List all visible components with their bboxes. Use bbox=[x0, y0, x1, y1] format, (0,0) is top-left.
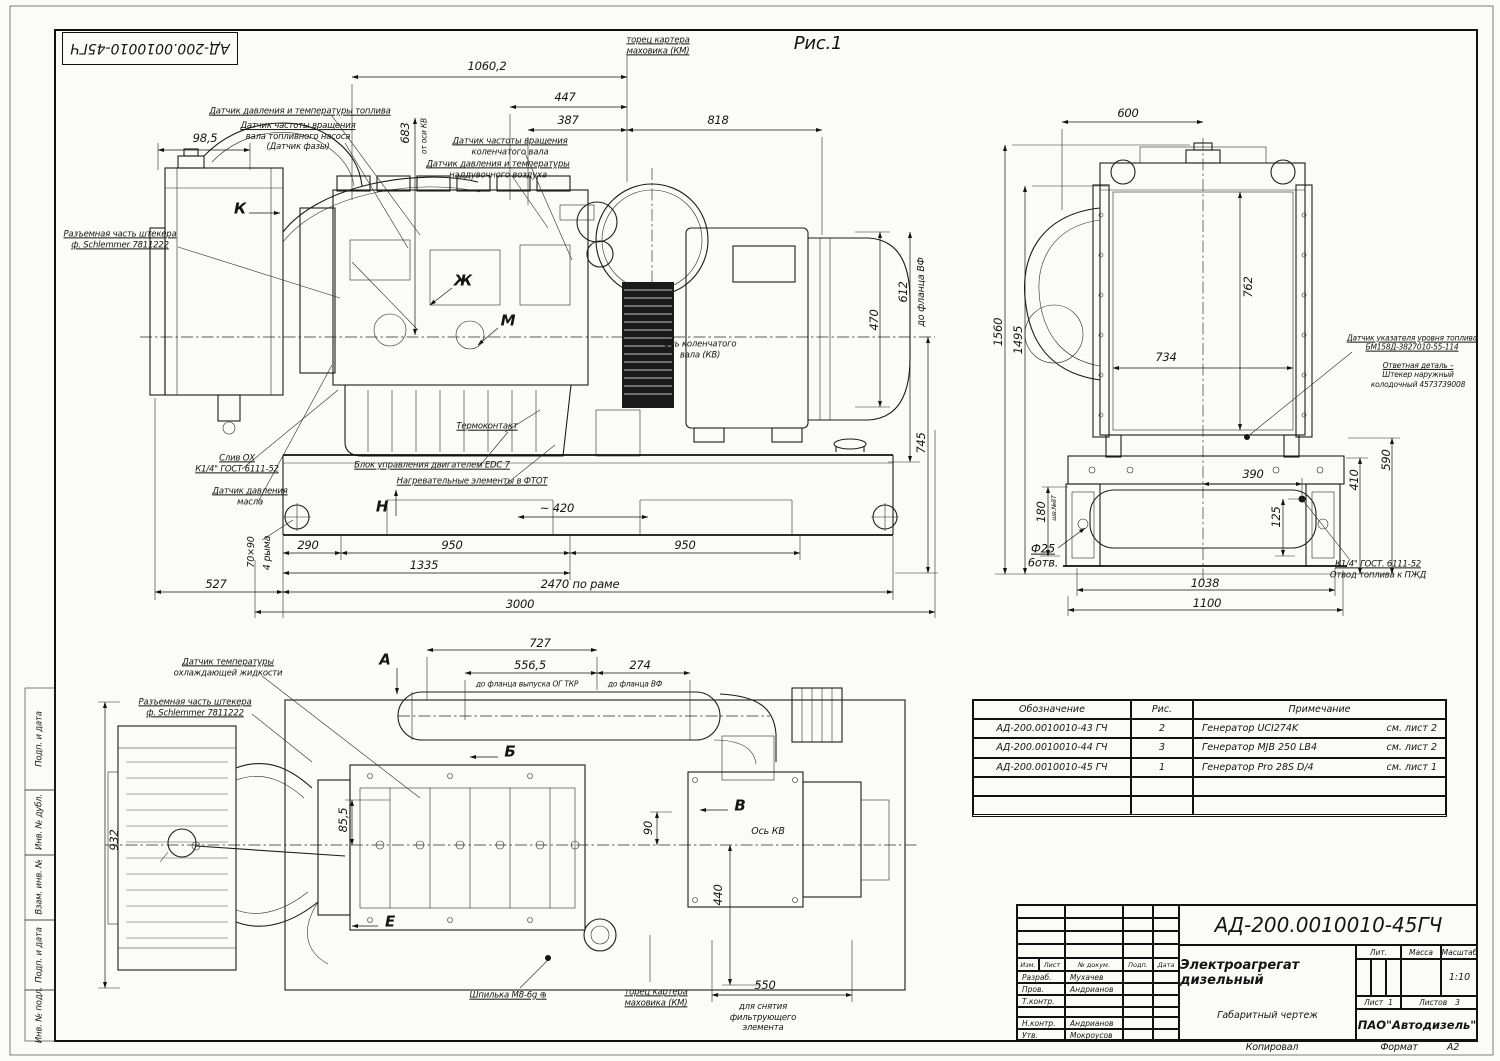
callout-line: ф. Schlemmer 7811222 bbox=[71, 240, 169, 250]
callout-line: Ответная деталь – bbox=[1383, 361, 1454, 370]
callout-connector-plan: Разъемная часть штекера ф. Schlemmer 781… bbox=[139, 697, 252, 718]
callout-heaters: Нагревательные элементы в ФТОТ bbox=[397, 477, 548, 488]
dim-90: 90 bbox=[641, 821, 655, 835]
table-cell: АД-200.0010010-43 ГЧ bbox=[973, 719, 1131, 738]
see-sheet: см. лист 2 bbox=[1387, 723, 1438, 734]
dim-1495: 1495 bbox=[1011, 326, 1025, 354]
parts-header-designation: Обозначение bbox=[973, 700, 1131, 719]
table-cell bbox=[1193, 777, 1446, 796]
dim-180: 180 bbox=[1034, 501, 1048, 522]
table-cell: АД-200.0010010-44 ГЧ bbox=[973, 738, 1131, 757]
margin-label-2: Инв. № дубл. bbox=[35, 794, 46, 850]
view-letter-zh: Ж bbox=[454, 272, 472, 291]
parts-header-fig: Рис. bbox=[1131, 700, 1193, 719]
view-letter-n: Н bbox=[376, 498, 388, 517]
dim-420: ~ 420 bbox=[540, 501, 574, 515]
sheet-frame bbox=[10, 6, 1493, 1055]
view-letter-a: А bbox=[379, 651, 390, 670]
dim-387: 387 bbox=[557, 113, 578, 127]
title-block: Изм. Лист № докум. Подп. Дата Разраб. Му… bbox=[1016, 904, 1477, 1040]
tb-col-izm: Изм. bbox=[1017, 958, 1039, 971]
tb-prov: Пров. bbox=[1017, 983, 1065, 995]
dim-683-note: от оси КВ bbox=[419, 118, 428, 154]
dim-274: 274 bbox=[629, 658, 650, 672]
tb-prov-name: Андрианов bbox=[1065, 983, 1123, 995]
dim-290: 290 bbox=[297, 538, 318, 552]
tb-col-podp: Подп. bbox=[1123, 958, 1153, 971]
tb-sheet-cell: Лист 1 bbox=[1356, 996, 1401, 1009]
callout-fuel-outlet: К1/4" ГОСТ. 6111-52 Отвод топлива к ПЖД bbox=[1330, 559, 1426, 580]
tb-utv-name: Мокроусов bbox=[1065, 1029, 1123, 1041]
dim-1038: 1038 bbox=[1191, 576, 1219, 590]
tb-nkontr: Н.контр. bbox=[1017, 1017, 1065, 1029]
see-sheet: см. лист 1 bbox=[1387, 762, 1438, 773]
callout-line: охлаждающей жидкости bbox=[174, 668, 283, 678]
callout-crank-axis: Ось коленчатого вала (КВ) bbox=[664, 339, 737, 360]
callout-line: для снятия bbox=[739, 1002, 787, 1012]
callout-line: маховика (КМ) bbox=[625, 998, 688, 1008]
callout-line: Датчик температуры bbox=[182, 657, 274, 667]
callout-line: маховика (КМ) bbox=[627, 46, 690, 56]
callout-line: Штекер наружный bbox=[1382, 370, 1453, 379]
tb-listov-label: Листов bbox=[1419, 998, 1447, 1007]
margin-label-3: Взам. инв. № bbox=[35, 859, 46, 914]
tb-tkontr-name bbox=[1065, 995, 1123, 1007]
callout-line: Датчик давления bbox=[212, 486, 287, 496]
callout-line: колодочный 4573739008 bbox=[1371, 380, 1465, 389]
table-cell: Генератор Pro 28S D/4 см. лист 1 bbox=[1193, 758, 1446, 777]
dim-734: 734 bbox=[1155, 350, 1176, 364]
callout-line: вала (КВ) bbox=[680, 350, 720, 360]
dim-745: 745 bbox=[914, 432, 928, 453]
callout-line: Датчик частоты вращения bbox=[452, 136, 567, 146]
dim-85-5: 85,5 bbox=[336, 808, 350, 833]
dim-274-note: до фланца ВФ bbox=[608, 679, 662, 688]
tb-razrab-name: Мухачев bbox=[1065, 971, 1123, 983]
dim-98-5: 98,5 bbox=[193, 131, 218, 145]
callout-mating-connector: Ответная деталь – Штекер наружный колодо… bbox=[1371, 361, 1465, 389]
dim-818: 818 bbox=[707, 113, 728, 127]
dim-556-note: до фланца выпуска ОГ ТКР bbox=[476, 679, 578, 688]
corner-stamp: АД-200.0010010-45ГЧ bbox=[62, 32, 238, 65]
dim-950a: 950 bbox=[441, 538, 462, 552]
dim-3000: 3000 bbox=[506, 597, 534, 611]
dim-470: 470 bbox=[867, 309, 881, 330]
tb-listov-no: 3 bbox=[1455, 998, 1460, 1007]
table-cell bbox=[973, 777, 1131, 796]
table-cell: АД-200.0010010-45 ГЧ bbox=[973, 758, 1131, 777]
callout-edc: Блок управления двигателем EDC 7 bbox=[354, 461, 510, 472]
tb-doc-number: АД-200.0010010-45ГЧ bbox=[1179, 905, 1478, 945]
tb-name-cell: Электроагрегат дизельный Габаритный черт… bbox=[1179, 945, 1356, 1041]
callout-line: Отвод топлива к ПЖД bbox=[1330, 570, 1426, 580]
callout-line: (Датчик фазы) bbox=[267, 142, 330, 152]
dim-932: 932 bbox=[107, 829, 121, 850]
callout-f25-holes: Ф25 6отв. bbox=[1028, 542, 1059, 571]
dim-447: 447 bbox=[554, 90, 575, 104]
note-text: Генератор UCI274K bbox=[1202, 723, 1298, 734]
tb-list-no: 1 bbox=[1388, 998, 1393, 1007]
dim-550: 550 bbox=[754, 978, 775, 992]
callout-line: Разъемная часть штекера bbox=[64, 229, 177, 239]
callout-line: наддувочного воздуха bbox=[449, 170, 547, 180]
dim-762: 762 bbox=[1241, 276, 1255, 297]
margin-label-1: Подп. и дата bbox=[35, 711, 46, 767]
tb-col-list: Лист bbox=[1039, 958, 1065, 971]
cad-linework: .dim{marker-start:url(#ar);marker-end:ur… bbox=[0, 0, 1500, 1061]
signature-grid: Изм. Лист № докум. Подп. Дата Разраб. Му… bbox=[1017, 905, 1179, 1041]
dim-556-5: 556,5 bbox=[514, 658, 546, 672]
table-cell bbox=[973, 796, 1131, 815]
dim-180-note: шв.№8Т bbox=[1050, 495, 1058, 521]
view-letter-e: Е bbox=[385, 913, 395, 932]
dim-440: 440 bbox=[711, 884, 725, 905]
callout-line: Слив ОХ bbox=[219, 453, 255, 463]
tb-scale-value: 1:10 bbox=[1441, 959, 1478, 996]
tb-razrab: Разраб. bbox=[1017, 971, 1065, 983]
callout-phase-sensor: Датчик частоты вращения вала топливного … bbox=[240, 121, 355, 153]
see-sheet: см. лист 2 bbox=[1387, 742, 1438, 753]
table-cell bbox=[1131, 777, 1193, 796]
dim-612-note: до фланца ВФ bbox=[916, 257, 928, 326]
callout-line: вала топливного насоса bbox=[246, 132, 351, 142]
callout-line: масла bbox=[237, 497, 263, 507]
callout-coolant-temp-sensor: Датчик температуры охлаждающей жидкости bbox=[174, 657, 283, 678]
tb-col-ndoc: № докум. bbox=[1065, 958, 1123, 971]
dim-527: 527 bbox=[205, 577, 226, 591]
callout-stud-m8: Шпилька М8-6g ⊕ bbox=[469, 991, 546, 1002]
label-axis-kv: Ось КВ bbox=[751, 826, 784, 838]
dim-390: 390 bbox=[1242, 467, 1263, 481]
callout-filter-removal: для снятия фильтрующего элемента bbox=[730, 1002, 796, 1034]
dim-612: 612 bbox=[896, 281, 910, 302]
dim-1335: 1335 bbox=[410, 558, 438, 572]
margin-label-4: Подп. и дата bbox=[35, 927, 46, 983]
table-cell: 3 bbox=[1131, 738, 1193, 757]
margin-label-5: Инв. № подл. bbox=[35, 987, 46, 1043]
callout-line: Ось коленчатого bbox=[664, 339, 737, 349]
callout-line: Датчик давления и температуры bbox=[426, 159, 569, 169]
footer-copied: Копировал bbox=[1246, 1042, 1298, 1054]
callout-line: коленчатого вала bbox=[472, 147, 549, 157]
tb-massa-label: Масса bbox=[1401, 945, 1441, 959]
callout-thermocontact: Термоконтакт bbox=[456, 422, 517, 433]
dim-70x90: 70×90 bbox=[246, 536, 258, 567]
note-text: Генератор Pro 28S D/4 bbox=[1202, 762, 1314, 773]
callout-line: БМ158Д-3827010-55-114 bbox=[1366, 343, 1459, 352]
callout-connector-side: Разъемная часть штекера ф. Schlemmer 781… bbox=[64, 229, 177, 250]
dim-1060: 1060,2 bbox=[467, 59, 506, 73]
dim-1100: 1100 bbox=[1193, 596, 1221, 610]
dim-683: 683 bbox=[398, 122, 412, 143]
callout-line: элемента bbox=[742, 1023, 783, 1033]
note-text: Генератор MJB 250 LB4 bbox=[1202, 742, 1317, 753]
callout-line: торец картера bbox=[626, 35, 689, 45]
callout-line: фильтрующего bbox=[730, 1013, 796, 1023]
callout-boost-sensor: Датчик давления и температуры наддувочно… bbox=[426, 159, 569, 180]
dim-600: 600 bbox=[1117, 106, 1138, 120]
tb-lit-label: Лит. bbox=[1356, 945, 1401, 959]
table-cell: Генератор MJB 250 LB4 см. лист 2 bbox=[1193, 738, 1446, 757]
table-cell: Генератор UCI274K см. лист 2 bbox=[1193, 719, 1446, 738]
callout-line: Датчик частоты вращения bbox=[240, 121, 355, 131]
callout-line: ф. Schlemmer 7811222 bbox=[146, 708, 244, 718]
dim-125: 125 bbox=[1269, 506, 1283, 527]
callout-line: К1/4" ГОСТ 6111-52 bbox=[195, 464, 279, 474]
table-cell: 1 bbox=[1131, 758, 1193, 777]
callout-line: 6отв. bbox=[1028, 556, 1059, 570]
callout-line: Датчик указателя уровня топлива bbox=[1347, 334, 1477, 343]
tb-sheets-cell: Листов 3 bbox=[1401, 996, 1478, 1009]
dim-410: 410 bbox=[1347, 469, 1361, 490]
tb-nkontr-name: Андрианов bbox=[1065, 1017, 1123, 1029]
view-letter-v: В bbox=[734, 797, 745, 816]
callout-line: К1/4" ГОСТ. 6111-52 bbox=[1335, 559, 1421, 569]
tb-list-label: Лист bbox=[1364, 998, 1383, 1007]
table-cell: 2 bbox=[1131, 719, 1193, 738]
callout-oil-pressure-sensor: Датчик давления масла bbox=[212, 486, 287, 507]
footer-format-label: Формат bbox=[1380, 1042, 1417, 1054]
figure-label: Рис.1 bbox=[794, 33, 843, 56]
view-letter-m: М bbox=[501, 312, 516, 331]
parts-header-note: Примечание bbox=[1193, 700, 1446, 719]
dim-1560: 1560 bbox=[991, 318, 1005, 346]
callout-flywheel-face-plan: торец картера маховика (КМ) bbox=[624, 987, 687, 1008]
tb-col-data: Дата bbox=[1153, 958, 1179, 971]
callout-coolant-drain: Слив ОХ К1/4" ГОСТ 6111-52 bbox=[195, 453, 279, 474]
callout-flywheel-face: торец картера маховика (КМ) bbox=[626, 35, 689, 56]
tb-masshtab-label: Масштаб bbox=[1441, 945, 1478, 959]
callout-crank-sensor: Датчик частоты вращения коленчатого вала bbox=[452, 136, 567, 157]
drawing-sheet: .dim{marker-start:url(#ar);marker-end:ur… bbox=[0, 0, 1500, 1061]
tb-title: Электроагрегат дизельный bbox=[1180, 958, 1355, 988]
callout-line: Разъемная часть штекера bbox=[139, 697, 252, 707]
table-cell bbox=[1131, 796, 1193, 815]
tb-tkontr: Т.контр. bbox=[1017, 995, 1065, 1007]
dim-727: 727 bbox=[529, 636, 550, 650]
tb-company: ПАО"Автодизель" bbox=[1356, 1009, 1478, 1041]
callout-line: торец картера bbox=[624, 987, 687, 997]
footer-format-value: А2 bbox=[1447, 1042, 1459, 1054]
callout-fuel-level-sensor: Датчик указателя уровня топлива БМ158Д-3… bbox=[1347, 334, 1477, 353]
tb-subtitle: Габаритный чертеж bbox=[1217, 1010, 1318, 1021]
dim-950b: 950 bbox=[674, 538, 695, 552]
view-letter-k: К bbox=[234, 200, 246, 219]
parts-table: Обозначение Рис. Примечание АД-200.00100… bbox=[972, 699, 1447, 817]
table-cell bbox=[1193, 796, 1446, 815]
note-4-ryma: 4 рыма bbox=[262, 536, 274, 570]
callout-fuel-sensor: Датчик давления и температуры топлива bbox=[209, 107, 390, 118]
dim-590: 590 bbox=[1379, 449, 1393, 470]
dim-2470: 2470 по раме bbox=[541, 577, 620, 591]
view-letter-b: Б bbox=[504, 743, 515, 762]
tb-utv: Утв. bbox=[1017, 1029, 1065, 1041]
callout-line: Ф25 bbox=[1031, 542, 1055, 556]
